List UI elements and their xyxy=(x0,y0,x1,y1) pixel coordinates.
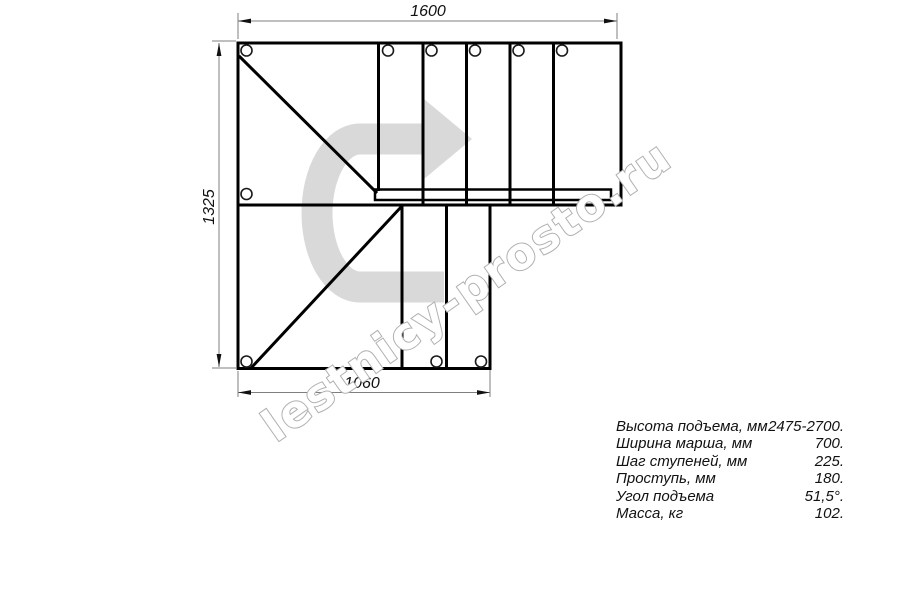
dimension-top: 1600 xyxy=(238,3,617,39)
spec-table: Высота подъема, мм 2475-2700. Ширина мар… xyxy=(616,418,844,522)
spec-row: Масса, кг 102. xyxy=(616,505,844,522)
spec-row: Проступь, мм 180. xyxy=(616,470,844,487)
spec-value: 51,5°. xyxy=(805,488,844,505)
bolt-hole-icon xyxy=(241,45,252,56)
spec-row: Угол подъема 51,5°. xyxy=(616,488,844,505)
spec-label: Шаг ступеней, мм xyxy=(616,453,747,470)
spec-value: 102. xyxy=(815,505,844,522)
dimension-left: 1325 xyxy=(201,41,236,368)
bolt-hole-icon xyxy=(476,356,487,367)
bolt-hole-icon xyxy=(383,45,394,56)
spec-label: Масса, кг xyxy=(616,505,683,522)
spec-label: Угол подъема xyxy=(616,488,714,505)
dimension-left-value: 1325 xyxy=(201,189,218,225)
spec-value: 700. xyxy=(815,435,844,452)
spec-label: Высота подъема, мм xyxy=(616,418,768,435)
spec-value: 225. xyxy=(815,453,844,470)
spec-row: Ширина марша, мм 700. xyxy=(616,435,844,452)
spec-row: Высота подъема, мм 2475-2700. xyxy=(616,418,844,435)
spec-label: Проступь, мм xyxy=(616,470,716,487)
bolt-hole-icon xyxy=(241,189,252,200)
bolt-hole-icon xyxy=(557,45,568,56)
bolt-hole-icon xyxy=(241,356,252,367)
dimension-top-value: 1600 xyxy=(410,3,446,20)
spec-row: Шаг ступеней, мм 225. xyxy=(616,453,844,470)
spec-value: 180. xyxy=(815,470,844,487)
spec-label: Ширина марша, мм xyxy=(616,435,752,452)
bolt-hole-icon xyxy=(470,45,481,56)
direction-arrow-icon xyxy=(317,99,472,287)
stair-drawing-page: 1600 1325 xyxy=(0,0,900,600)
bolt-hole-icon xyxy=(513,45,524,56)
spec-value: 2475-2700. xyxy=(768,418,844,435)
bolt-hole-icon xyxy=(431,356,442,367)
bolt-hole-icon xyxy=(426,45,437,56)
